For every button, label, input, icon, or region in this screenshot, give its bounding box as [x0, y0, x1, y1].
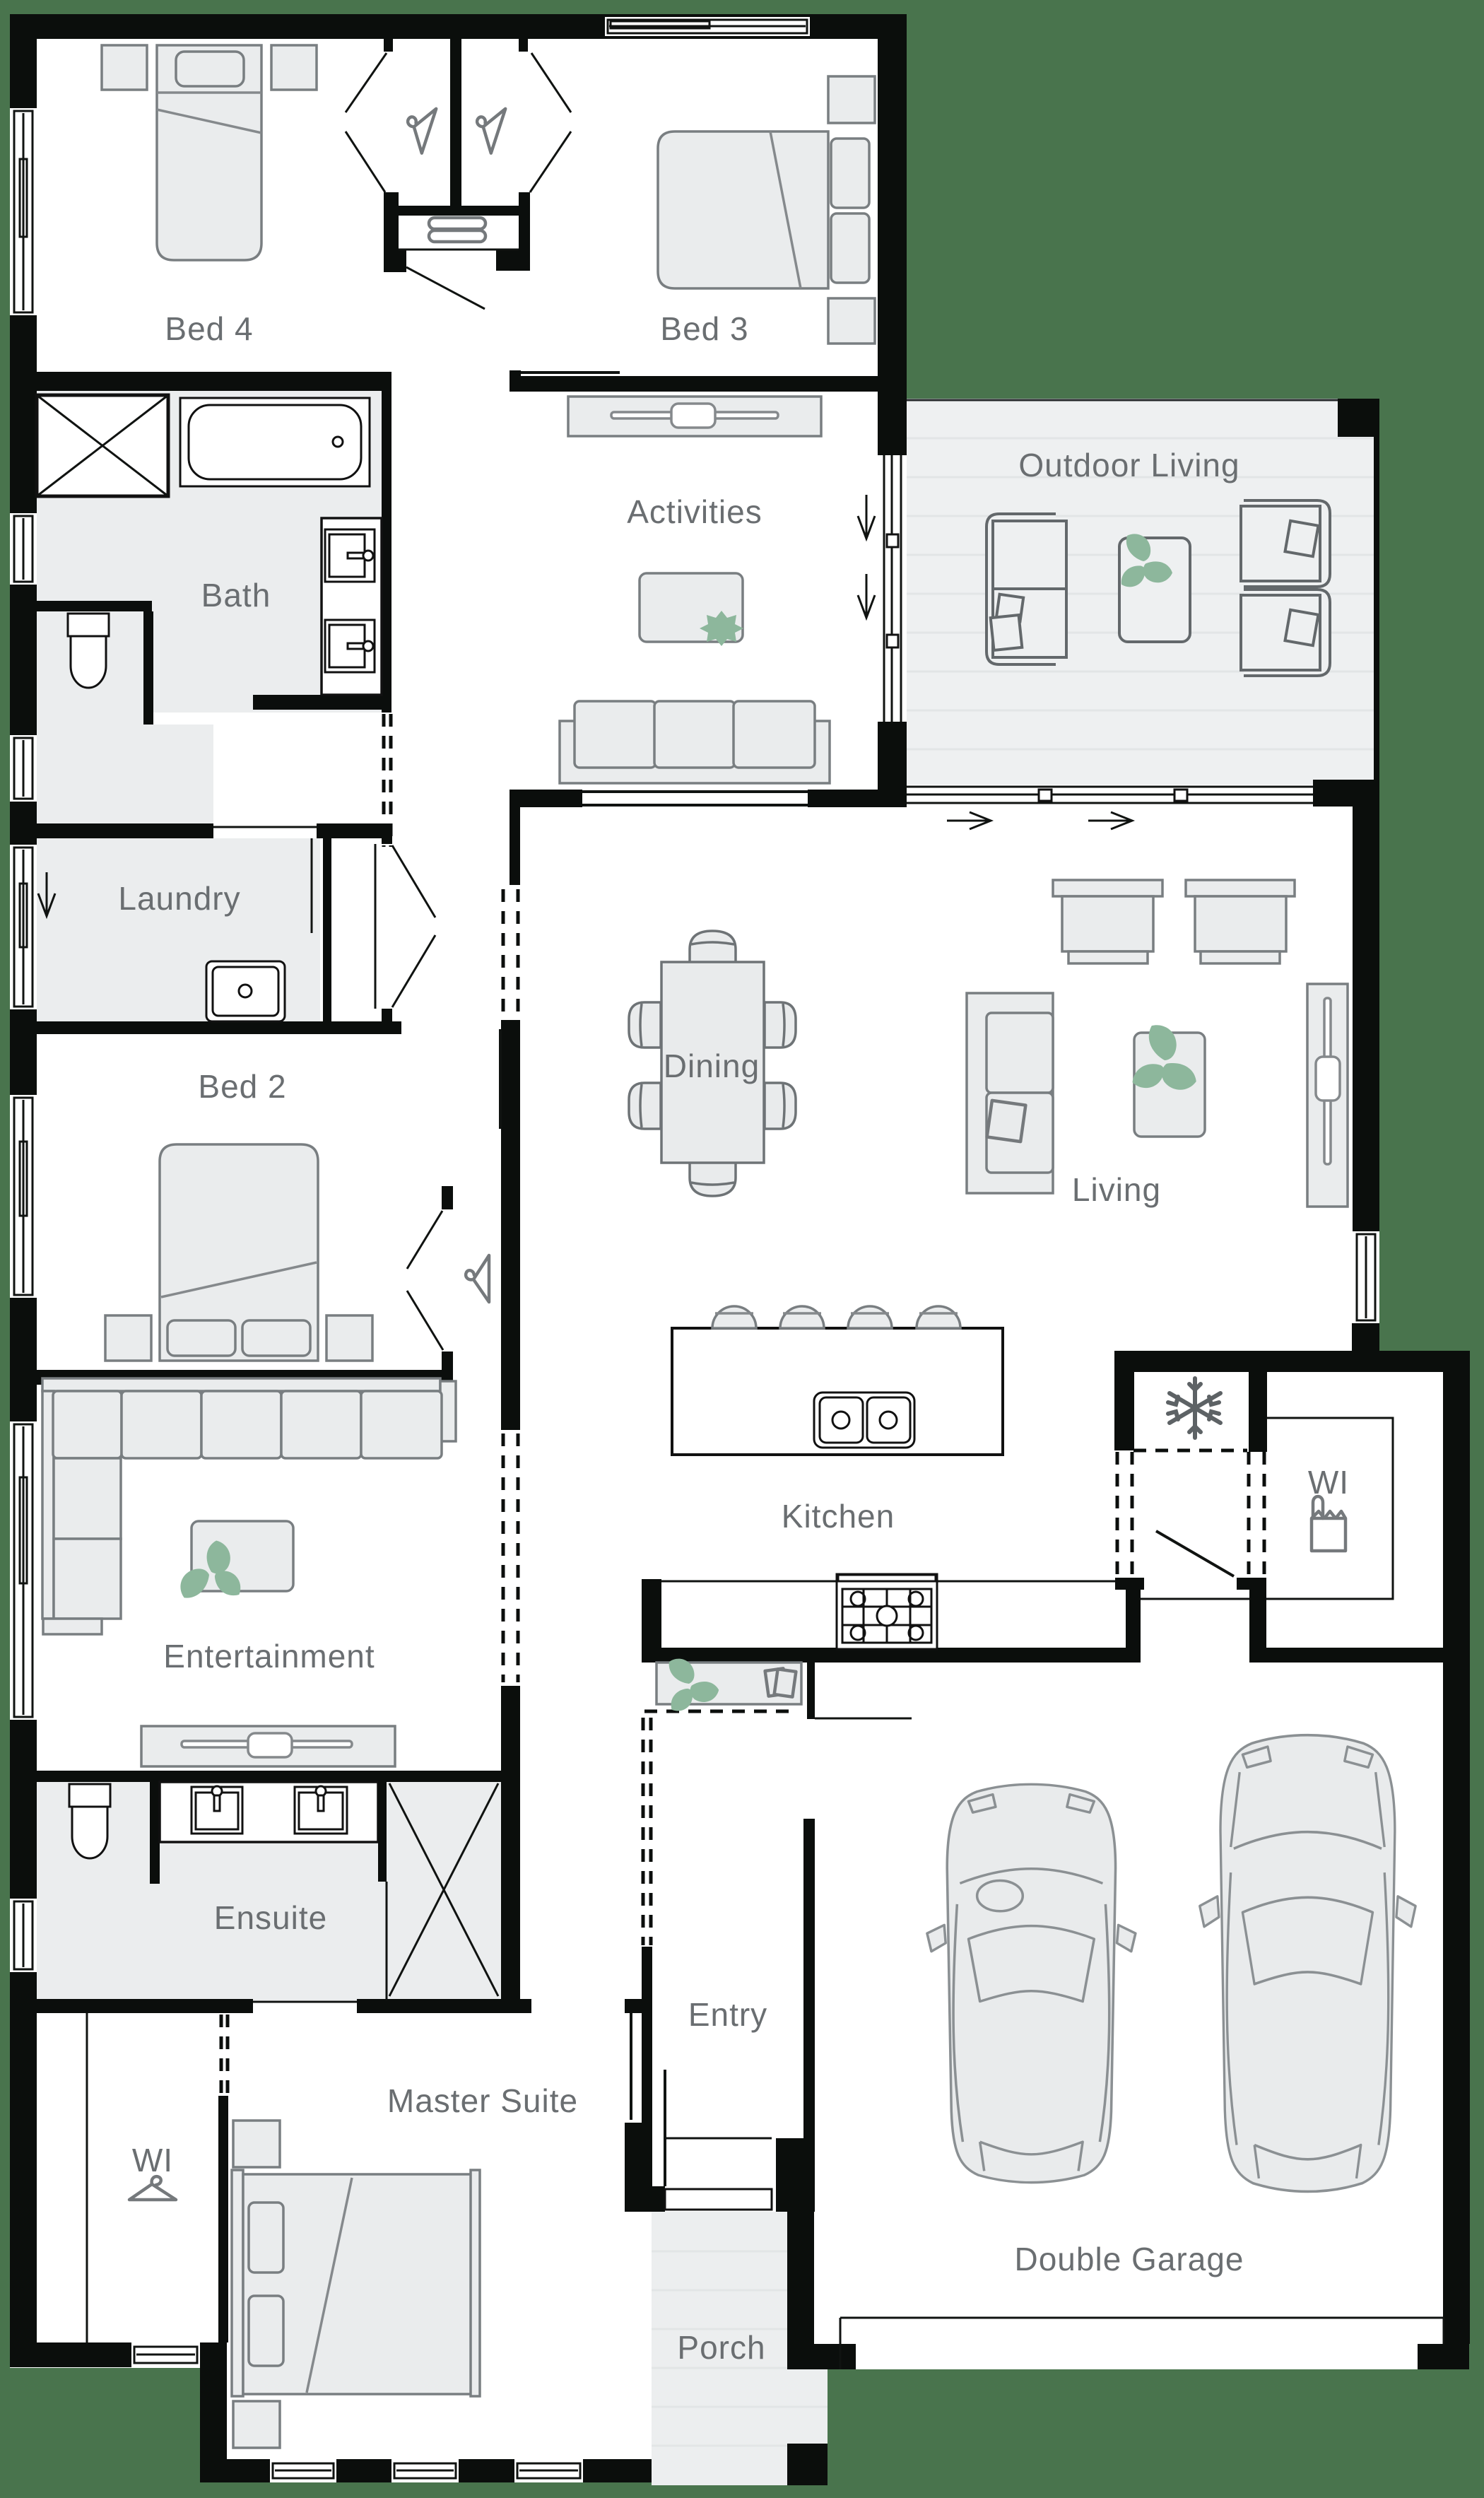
- svg-text:Entry: Entry: [688, 1996, 767, 2033]
- svg-text:Living: Living: [1072, 1171, 1161, 1208]
- svg-text:Kitchen: Kitchen: [782, 1498, 895, 1535]
- svg-text:Bed 4: Bed 4: [165, 310, 253, 347]
- svg-text:WI: WI: [1308, 1464, 1349, 1501]
- svg-text:Entertainment: Entertainment: [163, 1638, 375, 1675]
- svg-text:Bath: Bath: [201, 577, 271, 614]
- svg-text:Dining: Dining: [664, 1048, 760, 1084]
- svg-text:Master Suite: Master Suite: [387, 2082, 578, 2119]
- svg-text:Bed 3: Bed 3: [660, 310, 748, 347]
- svg-text:Double Garage: Double Garage: [1015, 2241, 1244, 2277]
- svg-text:Outdoor Living: Outdoor Living: [1018, 447, 1239, 483]
- svg-text:Bed 2: Bed 2: [198, 1068, 286, 1105]
- svg-text:Activities: Activities: [627, 493, 762, 530]
- svg-text:WI: WI: [132, 2142, 173, 2179]
- svg-text:Laundry: Laundry: [118, 880, 240, 917]
- svg-text:Ensuite: Ensuite: [214, 1899, 327, 1936]
- svg-text:Porch: Porch: [677, 2329, 765, 2366]
